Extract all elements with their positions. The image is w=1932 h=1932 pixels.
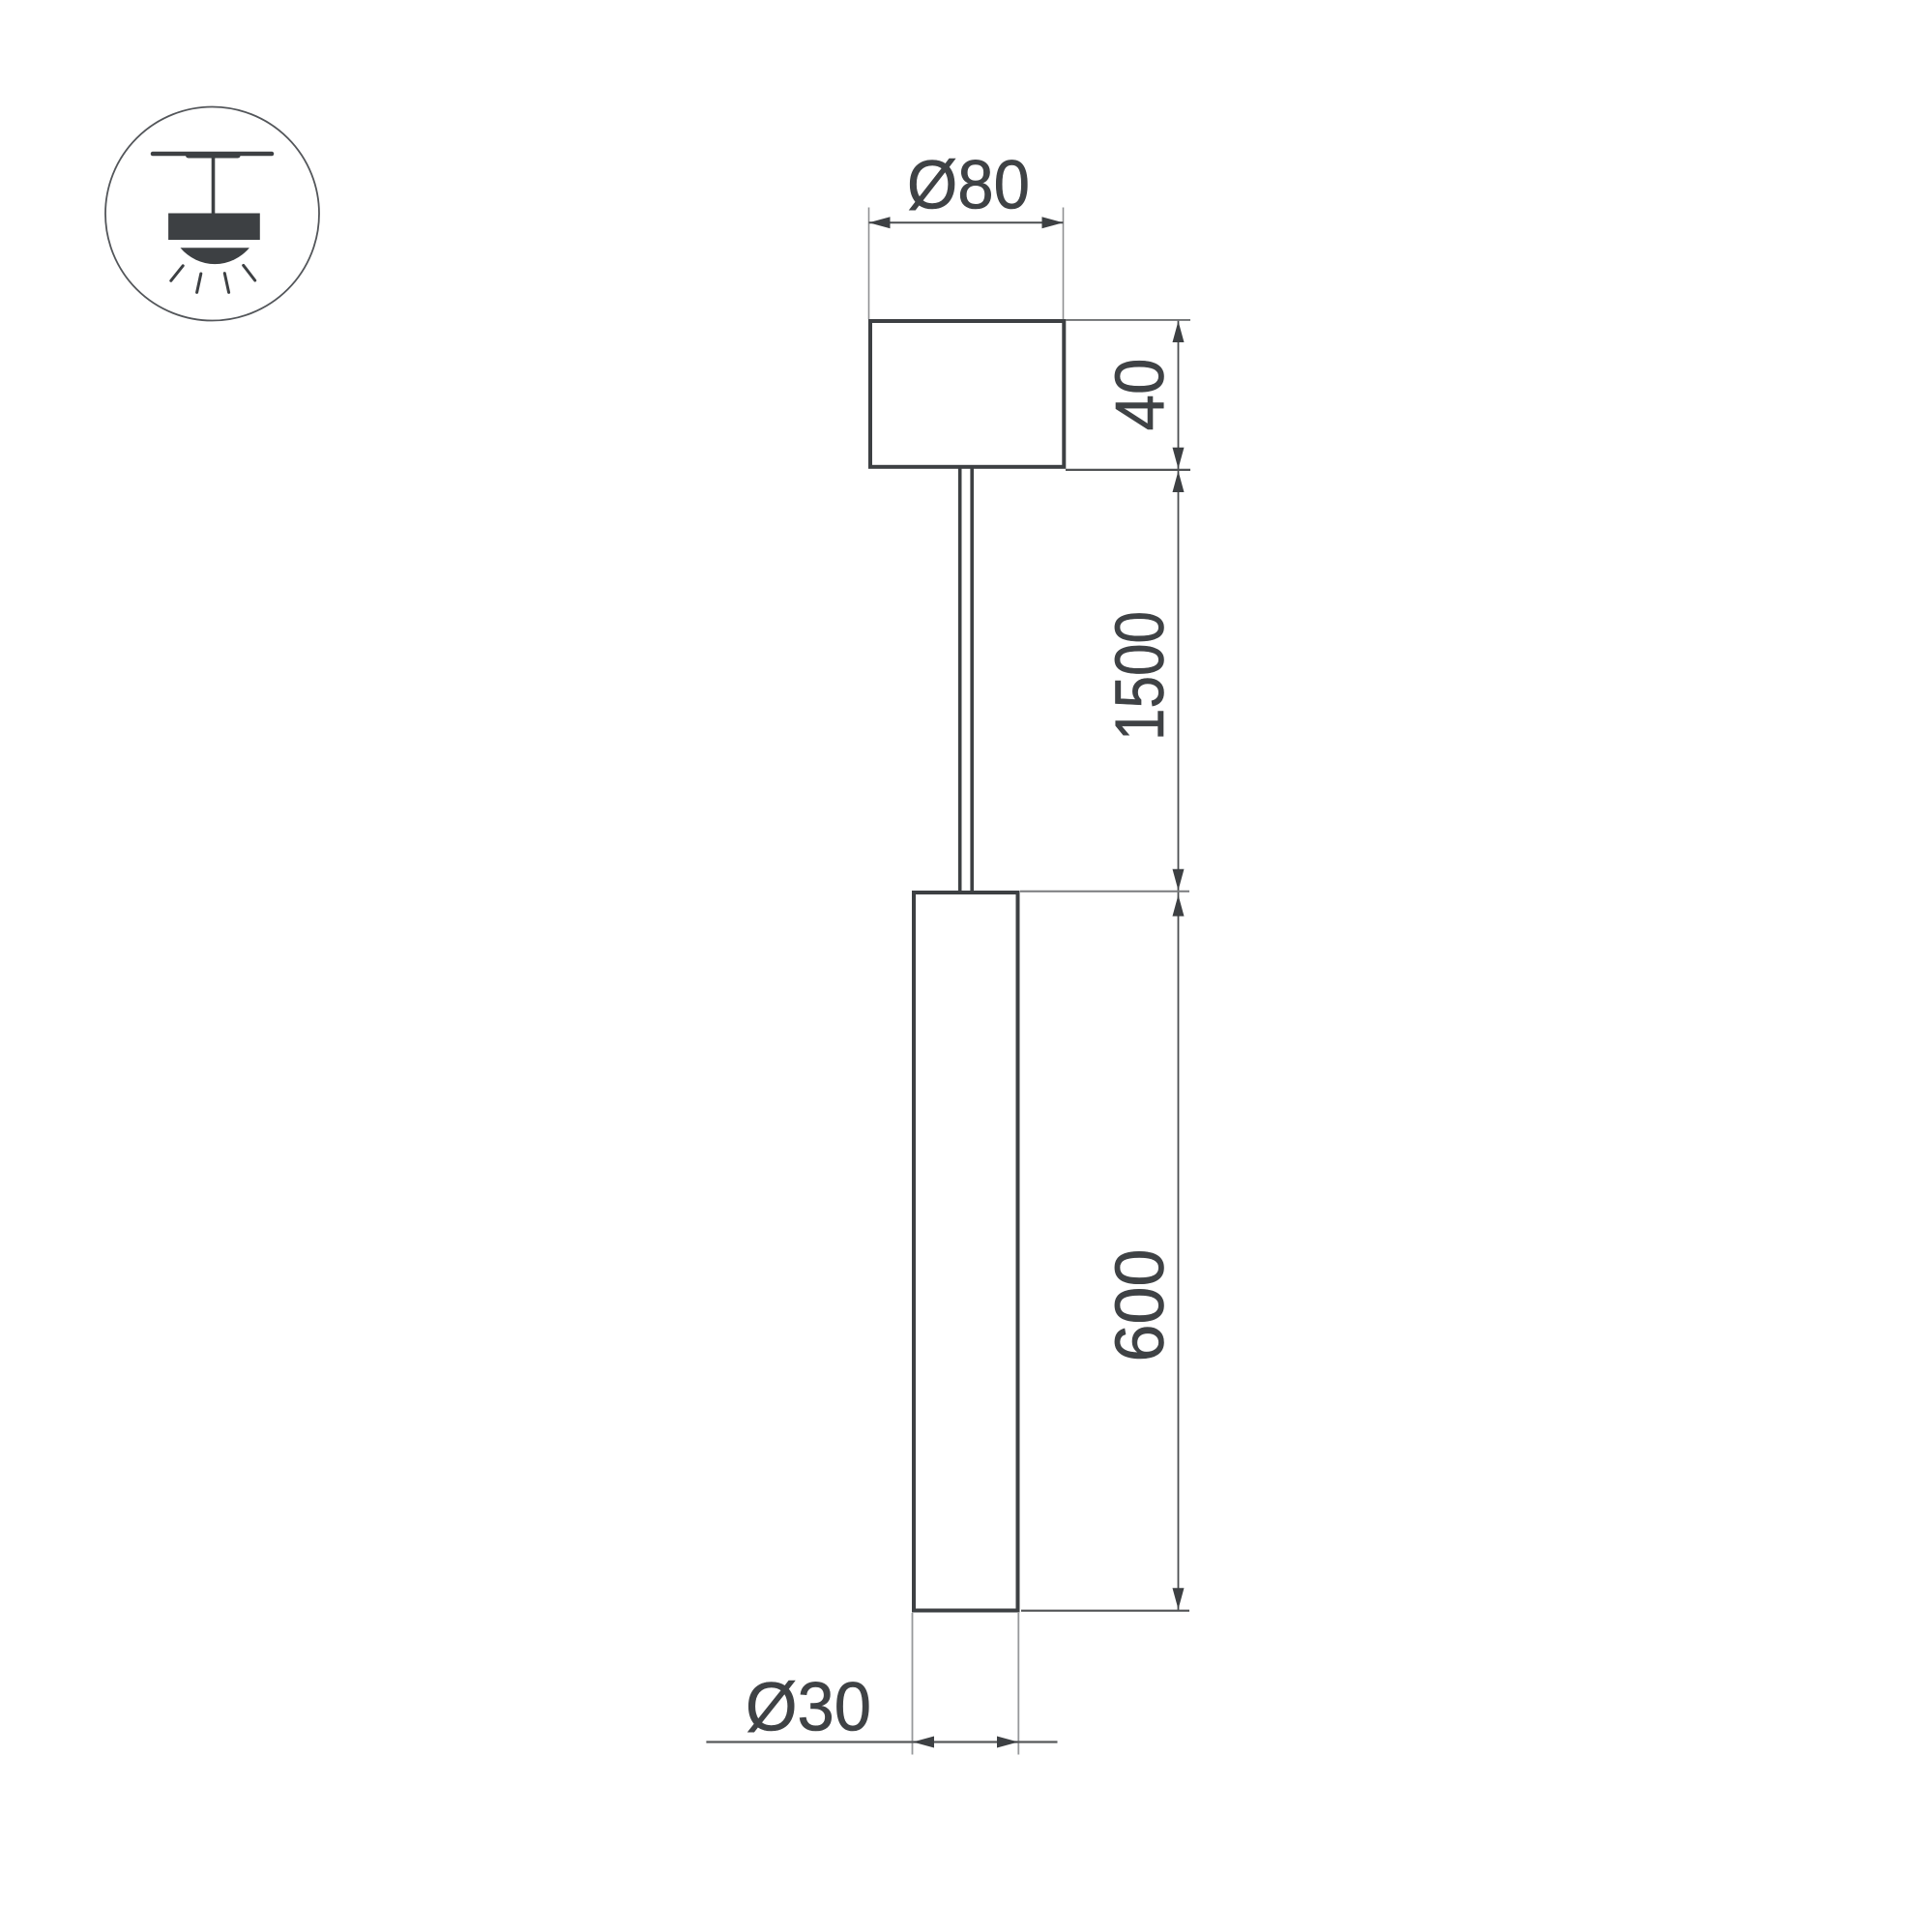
svg-text:1500: 1500 [1102, 611, 1179, 741]
svg-text:Ø80: Ø80 [907, 148, 1030, 224]
svg-text:40: 40 [1102, 359, 1179, 431]
svg-text:600: 600 [1102, 1249, 1179, 1362]
svg-text:Ø30: Ø30 [746, 1670, 871, 1746]
